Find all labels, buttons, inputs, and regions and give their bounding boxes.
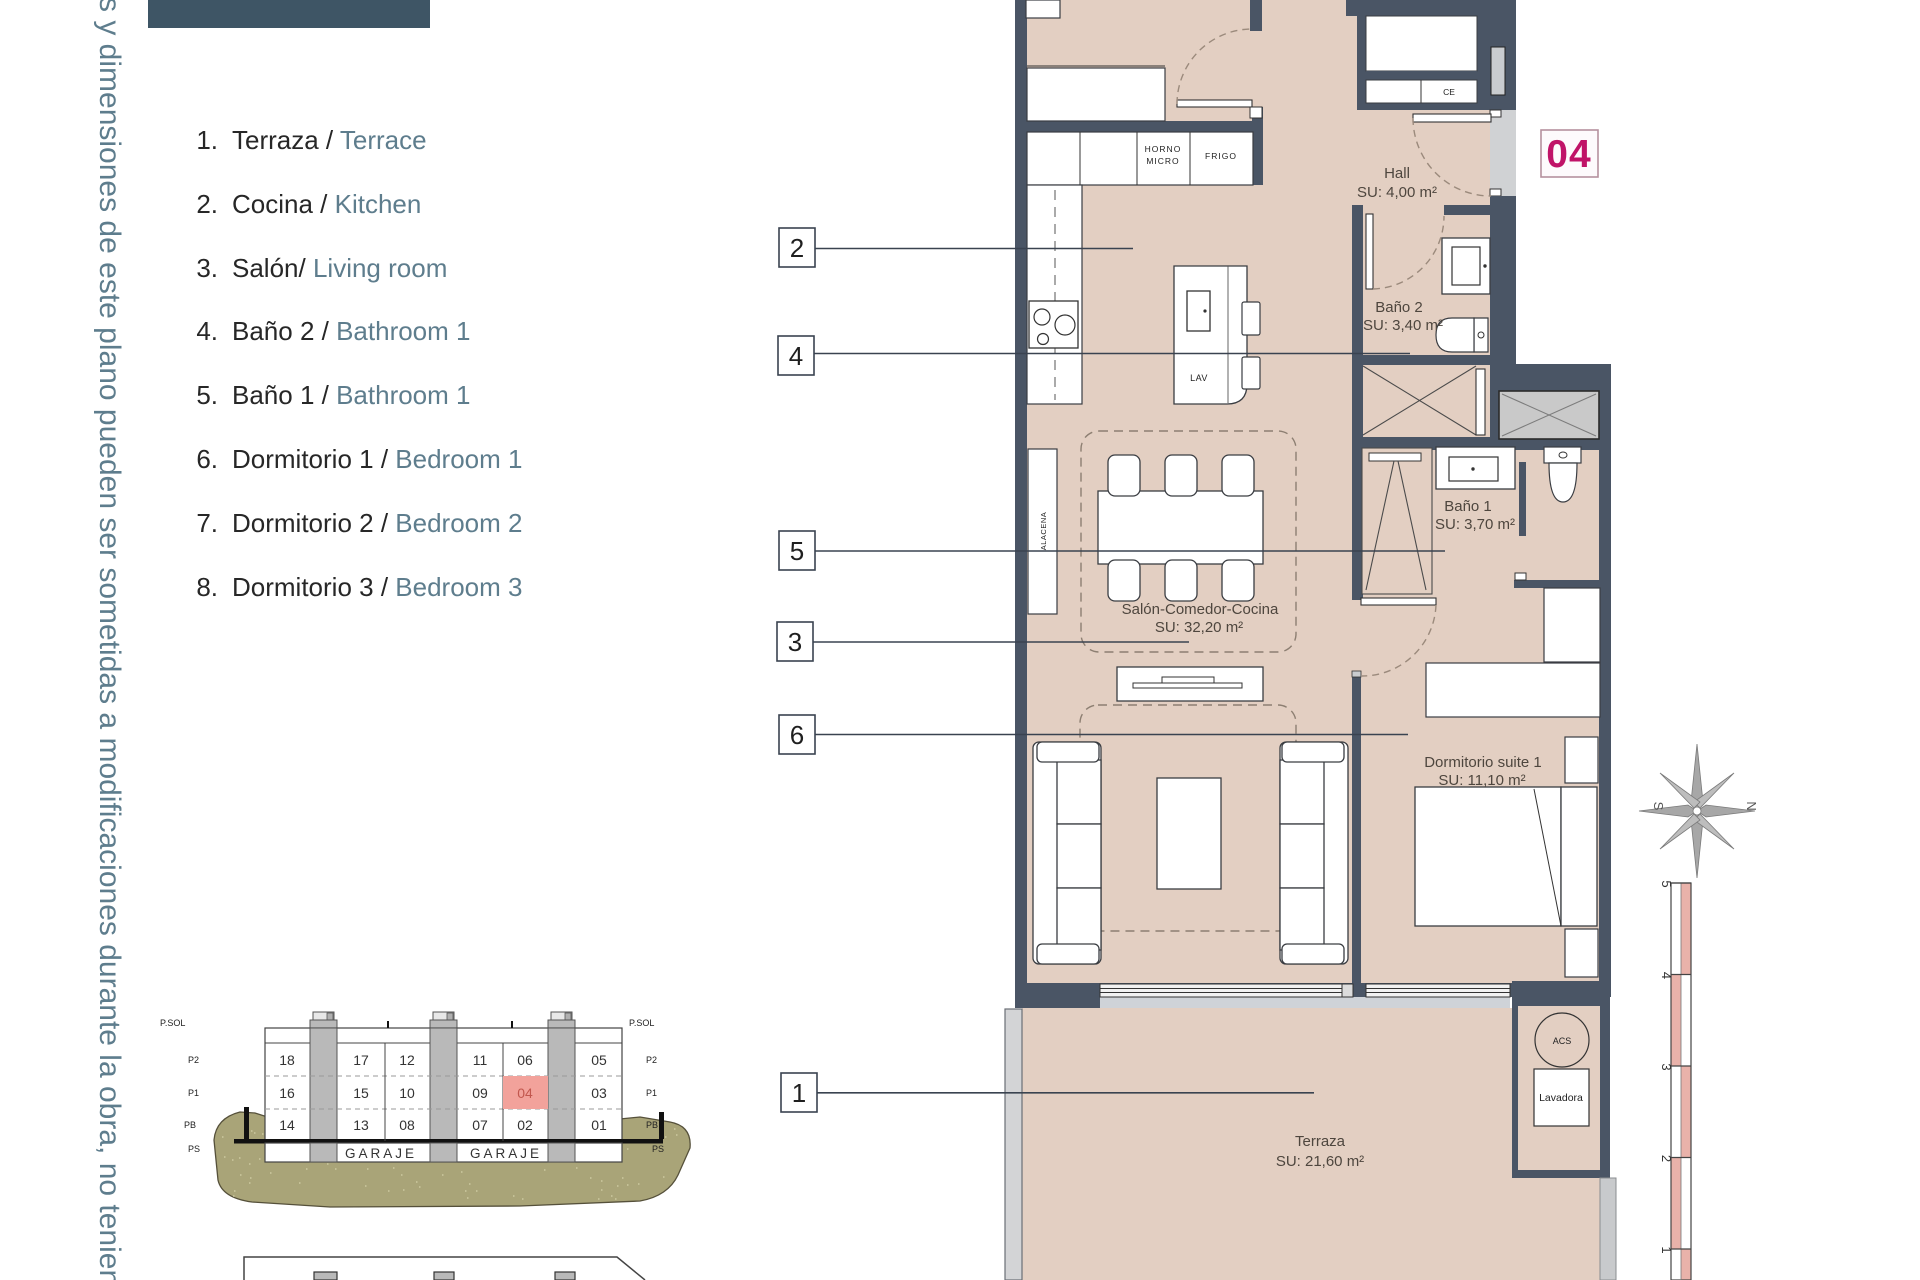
svg-text:GARAJE: GARAJE bbox=[470, 1146, 542, 1161]
svg-text:2: 2 bbox=[1659, 1155, 1674, 1162]
svg-text:2.: 2. bbox=[196, 189, 218, 219]
svg-text:1.: 1. bbox=[196, 125, 218, 155]
svg-text:FRIGO: FRIGO bbox=[1205, 151, 1237, 161]
svg-text:Cocina / Kitchen: Cocina / Kitchen bbox=[232, 189, 421, 219]
svg-text:Dormitorio 2 / Bedroom 2: Dormitorio 2 / Bedroom 2 bbox=[232, 508, 522, 538]
svg-text:05: 05 bbox=[591, 1052, 607, 1068]
svg-text:09: 09 bbox=[472, 1085, 488, 1101]
svg-text:P.SOL: P.SOL bbox=[629, 1018, 654, 1028]
svg-text:Dormitorio 3 / Bedroom 3: Dormitorio 3 / Bedroom 3 bbox=[232, 572, 522, 602]
svg-text:ALACENA: ALACENA bbox=[1039, 512, 1048, 551]
svg-text:P.SOL: P.SOL bbox=[160, 1018, 185, 1028]
svg-text:07: 07 bbox=[472, 1117, 488, 1133]
svg-text:3: 3 bbox=[788, 627, 802, 657]
svg-text:02: 02 bbox=[517, 1117, 533, 1133]
svg-text:SU: 4,00 m²: SU: 4,00 m² bbox=[1357, 184, 1437, 201]
svg-text:17: 17 bbox=[353, 1052, 369, 1068]
svg-text:6.: 6. bbox=[196, 444, 218, 474]
svg-text:13: 13 bbox=[353, 1117, 369, 1133]
svg-text:08: 08 bbox=[399, 1117, 415, 1133]
svg-text:Terraza / Terrace: Terraza / Terrace bbox=[232, 125, 427, 155]
svg-text:Baño 1 / Bathroom 1: Baño 1 / Bathroom 1 bbox=[232, 380, 471, 410]
svg-text:N: N bbox=[1744, 801, 1759, 810]
svg-text:5: 5 bbox=[1659, 880, 1674, 887]
svg-text:04: 04 bbox=[1546, 133, 1591, 176]
svg-text:14: 14 bbox=[279, 1117, 295, 1133]
svg-text:SU: 21,60 m²: SU: 21,60 m² bbox=[1276, 1153, 1364, 1170]
svg-text:16: 16 bbox=[279, 1085, 295, 1101]
svg-text:12: 12 bbox=[399, 1052, 415, 1068]
svg-text:Baño 1: Baño 1 bbox=[1444, 498, 1492, 515]
svg-text:PS: PS bbox=[652, 1144, 664, 1154]
svg-text:Terraza: Terraza bbox=[1295, 1133, 1346, 1150]
svg-text:03: 03 bbox=[591, 1085, 607, 1101]
svg-text:s y dimensiones de este plano: s y dimensiones de este plano pueden ser… bbox=[93, 0, 126, 1280]
svg-text:Dormitorio 1 / Bedroom 1: Dormitorio 1 / Bedroom 1 bbox=[232, 444, 522, 474]
svg-text:2: 2 bbox=[790, 233, 804, 263]
svg-text:Baño 2: Baño 2 bbox=[1375, 299, 1423, 316]
svg-text:HORNO: HORNO bbox=[1145, 144, 1182, 154]
svg-text:P1: P1 bbox=[188, 1088, 199, 1098]
svg-text:Salón-Comedor-Cocina: Salón-Comedor-Cocina bbox=[1122, 601, 1279, 618]
svg-text:Lavadora: Lavadora bbox=[1539, 1092, 1583, 1104]
svg-text:3.: 3. bbox=[196, 253, 218, 283]
svg-text:6: 6 bbox=[790, 720, 804, 750]
svg-text:04: 04 bbox=[517, 1085, 533, 1101]
svg-text:P2: P2 bbox=[646, 1055, 657, 1065]
svg-text:P2: P2 bbox=[188, 1055, 199, 1065]
svg-text:4: 4 bbox=[1659, 972, 1674, 979]
svg-text:Dormitorio suite 1: Dormitorio suite 1 bbox=[1424, 754, 1542, 771]
svg-text:11: 11 bbox=[473, 1052, 488, 1068]
svg-text:3: 3 bbox=[1659, 1063, 1674, 1070]
svg-text:ACS: ACS bbox=[1553, 1036, 1572, 1046]
svg-text:GARAJE: GARAJE bbox=[345, 1146, 417, 1161]
svg-text:5: 5 bbox=[790, 536, 804, 566]
svg-text:SU: 32,20 m²: SU: 32,20 m² bbox=[1155, 619, 1243, 636]
svg-text:SU: 3,40 m²: SU: 3,40 m² bbox=[1363, 317, 1443, 334]
svg-text:4: 4 bbox=[789, 341, 803, 371]
svg-text:8.: 8. bbox=[196, 572, 218, 602]
svg-text:PB: PB bbox=[646, 1120, 658, 1130]
svg-text:S: S bbox=[1651, 802, 1666, 811]
svg-text:MICRO: MICRO bbox=[1146, 156, 1179, 166]
svg-text:4.: 4. bbox=[196, 316, 218, 346]
svg-text:SU: 3,70 m²: SU: 3,70 m² bbox=[1435, 516, 1515, 533]
svg-text:P1: P1 bbox=[646, 1088, 657, 1098]
svg-text:06: 06 bbox=[517, 1052, 533, 1068]
svg-text:01: 01 bbox=[591, 1117, 607, 1133]
svg-text:LAV: LAV bbox=[1190, 373, 1208, 383]
svg-text:CE: CE bbox=[1443, 87, 1455, 97]
svg-text:Hall: Hall bbox=[1384, 165, 1410, 182]
svg-text:PS: PS bbox=[188, 1144, 200, 1154]
svg-text:15: 15 bbox=[353, 1085, 369, 1101]
svg-text:5.: 5. bbox=[196, 380, 218, 410]
svg-text:SU: 11,10 m²: SU: 11,10 m² bbox=[1438, 772, 1525, 789]
svg-text:Salón/ Living room: Salón/ Living room bbox=[232, 253, 447, 283]
svg-text:1: 1 bbox=[792, 1078, 806, 1108]
svg-text:Baño 2 / Bathroom 1: Baño 2 / Bathroom 1 bbox=[232, 316, 471, 346]
svg-text:PB: PB bbox=[184, 1120, 196, 1130]
svg-text:1: 1 bbox=[1659, 1246, 1674, 1253]
svg-text:7.: 7. bbox=[196, 508, 218, 538]
svg-text:18: 18 bbox=[279, 1052, 295, 1068]
svg-text:10: 10 bbox=[399, 1085, 415, 1101]
